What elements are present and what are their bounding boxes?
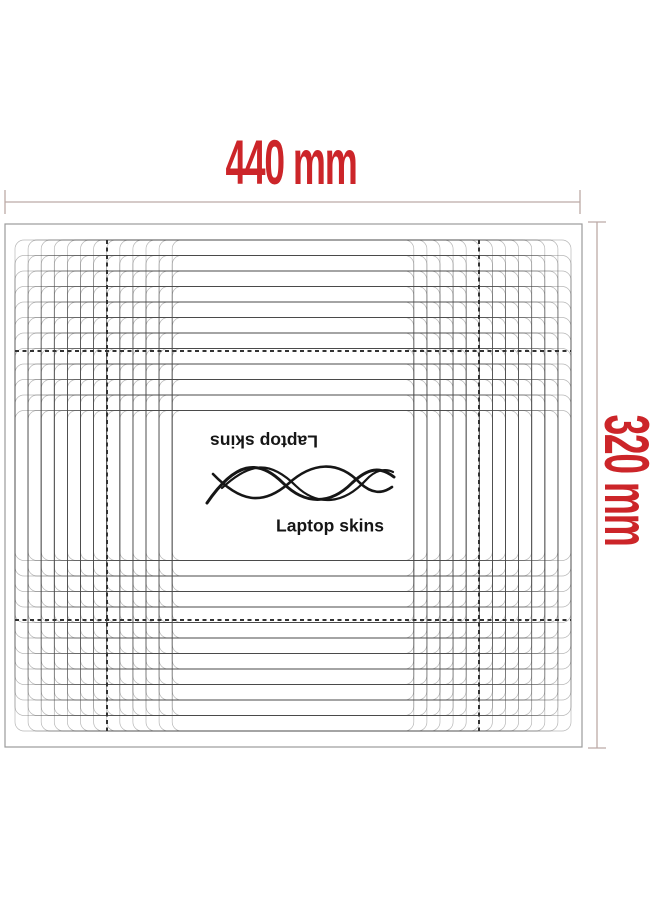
wave-swirl-icon [202,449,398,513]
height-dimension-label: 320 mm [595,414,658,545]
laptop-skin-product-diagram: 440 mm 320 mm Laptop skins Laptop skins [0,0,660,900]
width-dimension-label: 440 mm [225,132,356,195]
brand-text: Laptop skins [276,516,384,537]
